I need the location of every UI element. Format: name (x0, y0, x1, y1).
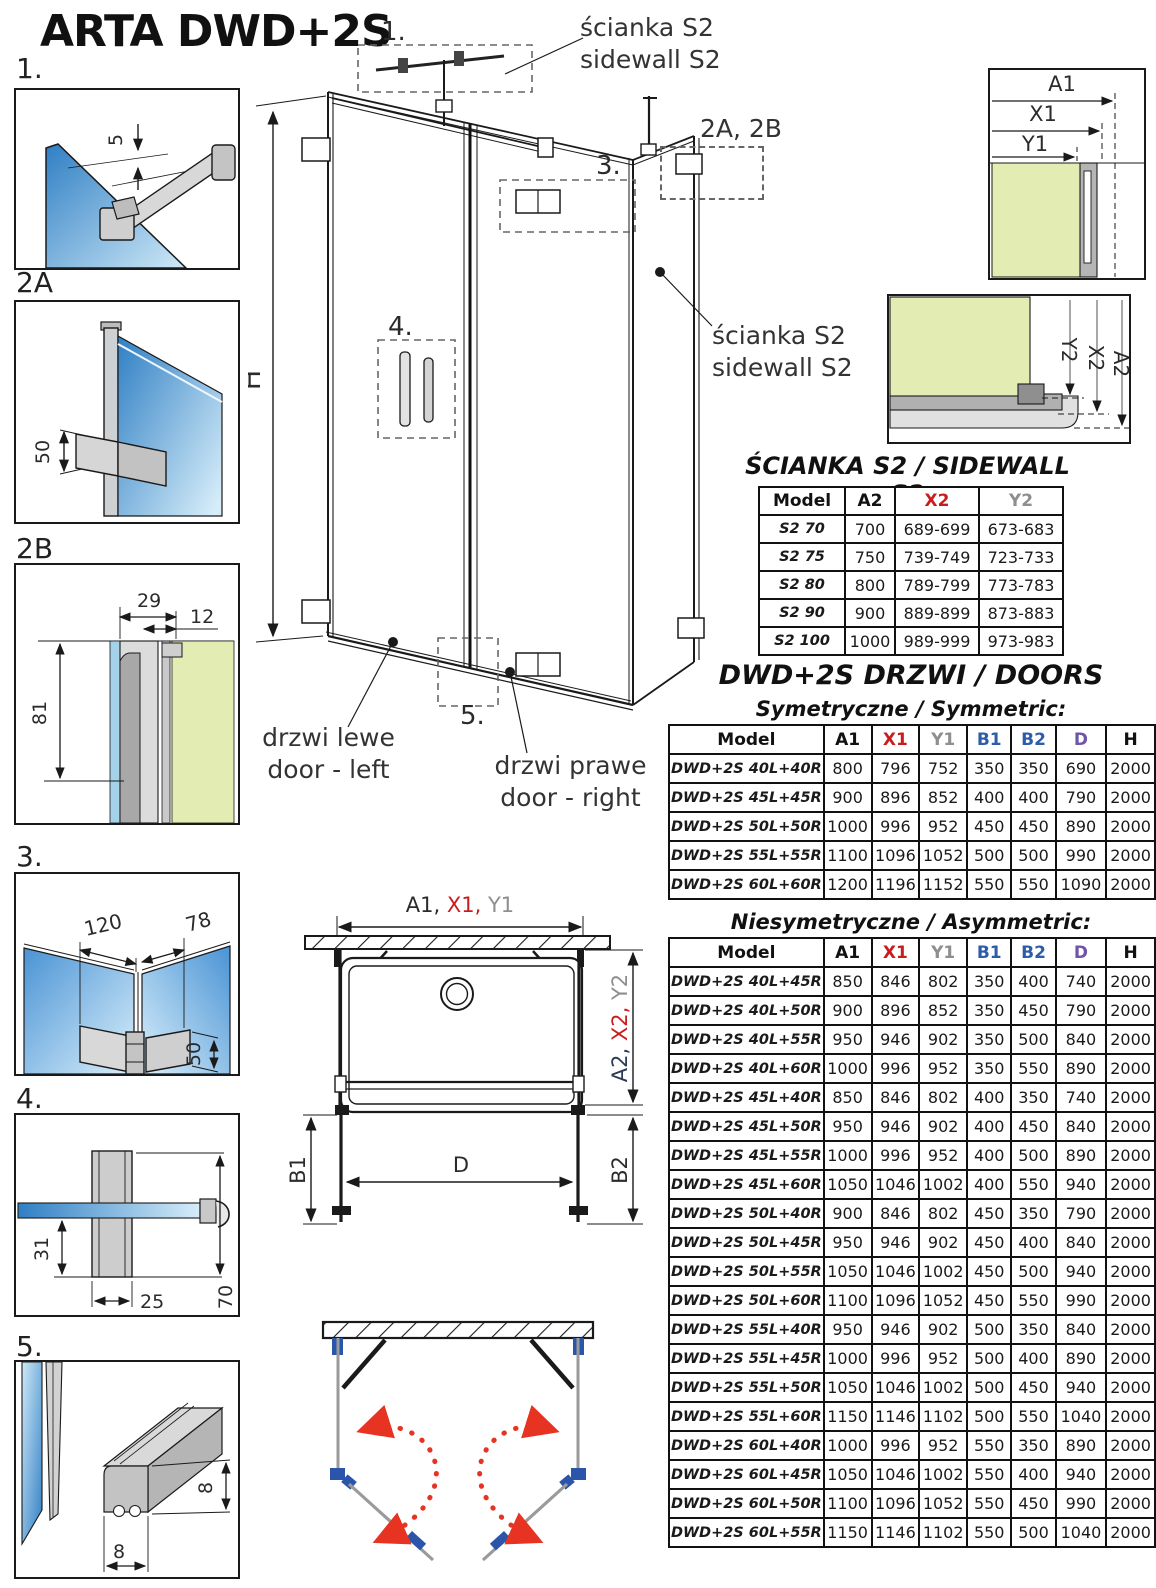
threshold-face (104, 1466, 148, 1512)
table-cell: 400 (967, 1170, 1011, 1199)
hinge-left (330, 1468, 345, 1480)
table-cell: 900 (845, 599, 895, 627)
table-cell: 2000 (1106, 1170, 1155, 1199)
door-left-pl: drzwi lewe (246, 722, 411, 754)
table-cell: 950 (824, 1025, 872, 1054)
table-cell: 550 (967, 1518, 1011, 1547)
handle-left (406, 1531, 426, 1550)
table-row: DWD+2S 45L+45R9008968524004007902000 (669, 783, 1155, 812)
table-cell: DWD+2S 55L+55R (669, 841, 824, 870)
column-header: A1 (824, 938, 872, 967)
table-cell: 2000 (1106, 812, 1155, 841)
column-header: Y2 (979, 487, 1063, 515)
callout-1-label: 1. (381, 17, 406, 47)
table-cell: 1052 (919, 841, 967, 870)
table-row: DWD+2S 50L+50R10009969524504508902000 (669, 812, 1155, 841)
table-cell: 850 (824, 967, 872, 996)
table-cell: DWD+2S 45L+55R (669, 1141, 824, 1170)
table-cell: 1000 (824, 812, 872, 841)
table-row: DWD+2S 55L+50R1050104610025004509402000 (669, 1373, 1155, 1402)
door-corner-detail: A1 X1 Y1 (985, 65, 1155, 290)
table-cell: 450 (1011, 1112, 1055, 1141)
asymmetric-subtitle: Niesymetryczne / Asymmetric: (668, 910, 1154, 934)
table-cell: 350 (1011, 1431, 1055, 1460)
table-row: DWD+2S 60L+50R1100109610525504509902000 (669, 1489, 1155, 1518)
table-cell: 1100 (824, 1489, 872, 1518)
sidewall-glass (890, 297, 1030, 396)
table-cell: 2000 (1106, 996, 1155, 1025)
table-cell: 2000 (1106, 870, 1155, 899)
table-cell: 1052 (919, 1286, 967, 1315)
door-left-en: door - left (246, 754, 411, 786)
table-row: DWD+2S 45L+55R10009969524005008902000 (669, 1141, 1155, 1170)
table-cell: 1000 (824, 1431, 872, 1460)
dim-a2-label: A2 (1109, 351, 1133, 377)
callout-2ab-label: 2A, 2B (700, 114, 782, 143)
table-row: S2 70700689-699673-683 (759, 515, 1063, 543)
hinge-bottom-left (302, 600, 330, 623)
swing-arc-left (363, 1426, 436, 1540)
table-cell: 1050 (824, 1170, 872, 1199)
table-cell: 723-733 (979, 543, 1063, 571)
detail-3-box: 120 78 50 (14, 872, 240, 1076)
table-cell: 450 (967, 812, 1011, 841)
glass-panel (118, 336, 222, 516)
door-handle-right (424, 358, 433, 422)
table-cell: 400 (967, 1083, 1011, 1112)
table-cell: 350 (1011, 1083, 1055, 1112)
table-cell: 1096 (872, 841, 920, 870)
table-cell: 952 (919, 1344, 967, 1373)
table-cell: S2 100 (759, 627, 845, 655)
dim-y1-label: Y1 (1021, 132, 1048, 156)
table-cell: 989-999 (895, 627, 979, 655)
hook-fitting (200, 1199, 216, 1223)
table-row: DWD+2S 60L+45R1050104610025504009402000 (669, 1460, 1155, 1489)
sidewall-top-label: ścianka S2 sidewall S2 (580, 12, 721, 76)
table-cell: DWD+2S 60L+60R (669, 870, 824, 899)
table-cell: 946 (872, 1112, 920, 1141)
door-right-label: drzwi prawe door - right (478, 750, 663, 814)
table-cell: 1040 (1056, 1402, 1107, 1431)
sidewall-right-en: sidewall S2 (712, 352, 853, 384)
table-cell: 902 (919, 1112, 967, 1141)
handle-right (490, 1531, 510, 1550)
table-cell: 902 (919, 1025, 967, 1054)
detail-1-label: 1. (16, 52, 43, 85)
detail-2b-box: 29 12 81 (14, 563, 240, 825)
table-cell: 450 (967, 1257, 1011, 1286)
table-cell: 1050 (824, 1257, 872, 1286)
table-cell: 500 (967, 1344, 1011, 1373)
table-cell: 700 (845, 515, 895, 543)
table-cell: 2000 (1106, 841, 1155, 870)
table-row: DWD+2S 45L+40R8508468024003507402000 (669, 1083, 1155, 1112)
table-cell: 350 (1011, 1315, 1055, 1344)
table-cell: 400 (1011, 1344, 1055, 1373)
column-header: Model (669, 938, 824, 967)
table-cell: 940 (1056, 1170, 1107, 1199)
table-cell: 450 (967, 1286, 1011, 1315)
detail-2b-drawing: 29 12 81 (16, 565, 238, 823)
table-cell: 802 (919, 967, 967, 996)
column-header: B1 (967, 938, 1011, 967)
detail-5-box: 8 8 (14, 1360, 240, 1579)
table-cell: 2000 (1106, 1054, 1155, 1083)
table-cell: 896 (872, 996, 920, 1025)
detail-4-box: 31 25 70 (14, 1113, 240, 1317)
table-cell: 946 (872, 1025, 920, 1054)
table-cell: 852 (919, 996, 967, 1025)
table-cell: 2000 (1106, 1228, 1155, 1257)
table-cell: 500 (967, 1373, 1011, 1402)
glass-edge (110, 641, 120, 823)
wall-profile (104, 328, 118, 516)
table-cell: 400 (1011, 967, 1055, 996)
table-cell: 840 (1056, 1112, 1107, 1141)
table-cell: 350 (1011, 1199, 1055, 1228)
table-cell: 1050 (824, 1460, 872, 1489)
door-right-en: door - right (478, 782, 663, 814)
table-cell: 500 (967, 1315, 1011, 1344)
glass-strip (18, 1203, 200, 1218)
table-cell: 2000 (1106, 1141, 1155, 1170)
table-row: DWD+2S 60L+55R11501146110255050010402000 (669, 1518, 1155, 1547)
table-cell: S2 80 (759, 571, 845, 599)
detail-1-box: 5 (14, 88, 240, 270)
table-cell: 1152 (919, 870, 967, 899)
table-cell: 1146 (872, 1402, 920, 1431)
table-cell: 1050 (824, 1373, 872, 1402)
table-cell: 400 (967, 1112, 1011, 1141)
table-cell: 740 (1056, 1083, 1107, 1112)
dim-8-side: 8 (195, 1482, 217, 1494)
table-cell: 550 (967, 1460, 1011, 1489)
table-cell: 450 (1011, 812, 1055, 841)
table-cell: DWD+2S 55L+45R (669, 1344, 824, 1373)
door-left-label: drzwi lewe door - left (246, 722, 411, 786)
wall-mount (212, 145, 235, 180)
table-cell: 2000 (1106, 1083, 1155, 1112)
hinge-right (571, 1468, 586, 1480)
table-cell: DWD+2S 45L+50R (669, 1112, 824, 1141)
table-cell: 350 (967, 1025, 1011, 1054)
table-cell: 900 (824, 783, 872, 812)
table-cell: 840 (1056, 1228, 1107, 1257)
table-cell: 673-683 (979, 515, 1063, 543)
table-cell: DWD+2S 55L+50R (669, 1373, 824, 1402)
table-row: DWD+2S 55L+60R11501146110250055010402000 (669, 1402, 1155, 1431)
table-cell: DWD+2S 60L+45R (669, 1460, 824, 1489)
table-cell: DWD+2S 45L+40R (669, 1083, 824, 1112)
column-header: H (1106, 725, 1155, 754)
table-cell: DWD+2S 40L+55R (669, 1025, 824, 1054)
table-cell: 550 (967, 870, 1011, 899)
table-cell: 550 (967, 1431, 1011, 1460)
table-cell: 2000 (1106, 783, 1155, 812)
table-row: S2 90900889-899873-883 (759, 599, 1063, 627)
callout-5-label: 5. (460, 701, 485, 731)
table-cell: 1002 (919, 1170, 967, 1199)
table-cell: 902 (919, 1228, 967, 1257)
table-cell: 350 (967, 967, 1011, 996)
table-cell: DWD+2S 55L+40R (669, 1315, 824, 1344)
asymmetric-doors-table: ModelA1X1Y1B1B2DHDWD+2S 40L+45R850846802… (668, 937, 1156, 1548)
table-cell: 773-783 (979, 571, 1063, 599)
dim-31: 31 (31, 1237, 53, 1261)
table-cell: 802 (919, 1199, 967, 1228)
detail-4-drawing: 31 25 70 (16, 1115, 238, 1315)
table-cell: 2000 (1106, 1489, 1155, 1518)
table-cell: 1102 (919, 1518, 967, 1547)
table-cell: 950 (824, 1112, 872, 1141)
table-cell: 1102 (919, 1402, 967, 1431)
table-cell: 1200 (824, 870, 872, 899)
table-cell: 952 (919, 1431, 967, 1460)
dim-78: 78 (183, 907, 214, 937)
table-cell: 690 (1056, 754, 1107, 783)
dim-a1-label: A1 (1048, 72, 1076, 96)
table-row: S2 80800789-799773-783 (759, 571, 1063, 599)
table-cell: 2000 (1106, 1257, 1155, 1286)
table-cell: 2000 (1106, 1373, 1155, 1402)
column-header: A1 (824, 725, 872, 754)
table-cell: 2000 (1106, 1402, 1155, 1431)
column-header: D (1056, 938, 1107, 967)
table-cell: 790 (1056, 783, 1107, 812)
table-cell: 2000 (1106, 1286, 1155, 1315)
doors-table-title: DWD+2S DRZWI / DOORS (668, 660, 1154, 691)
table-cell: 1096 (872, 1286, 920, 1315)
dim-b1-label: B1 (286, 1156, 310, 1184)
column-header: X1 (872, 938, 920, 967)
wall-hatch (305, 936, 610, 949)
hinge-top-left (302, 138, 330, 161)
table-cell: 1046 (872, 1373, 920, 1402)
table-cell: 1046 (872, 1257, 920, 1286)
column-header: B1 (967, 725, 1011, 754)
table-cell: 940 (1056, 1257, 1107, 1286)
table-cell: 2000 (1106, 1431, 1155, 1460)
plan-top-dim: A1, X1, Y1 (406, 893, 514, 917)
sidewall-corner-detail: Y2 X2 A2 (878, 292, 1150, 450)
table-cell: 400 (1011, 783, 1055, 812)
callout-4-label: 4. (388, 312, 413, 342)
table-cell: 873-883 (979, 599, 1063, 627)
detail-5-drawing: 8 8 (16, 1362, 238, 1577)
column-header: Model (759, 487, 845, 515)
table-cell: 996 (872, 1344, 920, 1373)
spec-sheet-page: ARTA DWD+2S 1. 5 2A (0, 0, 1156, 1588)
table-cell: 1100 (824, 1286, 872, 1315)
table-row: DWD+2S 55L+45R10009969525004008902000 (669, 1344, 1155, 1373)
table-row: DWD+2S 45L+50R9509469024004508402000 (669, 1112, 1155, 1141)
table-cell: 450 (1011, 1489, 1055, 1518)
table-cell: 2000 (1106, 1518, 1155, 1547)
dim-5: 5 (105, 134, 127, 146)
column-header: X2 (895, 487, 979, 515)
symmetric-doors-table: ModelA1X1Y1B1B2DHDWD+2S 40L+40R800796752… (668, 724, 1156, 900)
table-cell: 1196 (872, 870, 920, 899)
table-cell: 1002 (919, 1257, 967, 1286)
table-cell: 1000 (845, 627, 895, 655)
table-row: DWD+2S 55L+55R1100109610525005009902000 (669, 841, 1155, 870)
table-cell: 1150 (824, 1518, 872, 1547)
sidewall-bracket-bottom (678, 618, 704, 638)
table-cell: 890 (1056, 812, 1107, 841)
sidewall-top-en: sidewall S2 (580, 44, 721, 76)
table-cell: 2000 (1106, 1025, 1155, 1054)
dim-y2-label: Y2 (1057, 337, 1081, 363)
table-cell: 890 (1056, 1431, 1107, 1460)
detail-3-label: 3. (16, 840, 43, 873)
table-cell: DWD+2S 40L+40R (669, 754, 824, 783)
table-cell: 996 (872, 1141, 920, 1170)
table-cell: 789-799 (895, 571, 979, 599)
wall-section (992, 163, 1080, 277)
column-header: B2 (1011, 725, 1055, 754)
table-cell: S2 90 (759, 599, 845, 627)
table-cell: 752 (919, 754, 967, 783)
table-cell: 500 (1011, 1518, 1055, 1547)
detail-2b-label: 2B (16, 532, 53, 565)
table-cell: DWD+2S 40L+60R (669, 1054, 824, 1083)
detail-4-label: 4. (16, 1082, 43, 1115)
column-header: A2 (845, 487, 895, 515)
table-cell: 550 (1011, 1286, 1055, 1315)
wall-section (172, 641, 234, 823)
table-cell: 840 (1056, 1315, 1107, 1344)
table-cell: 550 (967, 1489, 1011, 1518)
column-header: Model (669, 725, 824, 754)
table-cell: 850 (824, 1083, 872, 1112)
dim-d-label: D (453, 1153, 469, 1177)
table-cell: 896 (872, 783, 920, 812)
column-header: Y1 (919, 725, 967, 754)
table-header-row: ModelA1X1Y1B1B2DH (669, 938, 1155, 967)
table-cell: 350 (967, 996, 1011, 1025)
table-row: S2 1001000989-999973-983 (759, 627, 1063, 655)
detail-1-drawing: 5 (16, 90, 238, 268)
table-cell: DWD+2S 50L+45R (669, 1228, 824, 1257)
table-cell: 900 (824, 1199, 872, 1228)
table-cell: DWD+2S 45L+45R (669, 783, 824, 812)
table-cell: 2000 (1106, 1344, 1155, 1373)
table-cell: 1096 (872, 1489, 920, 1518)
column-header: X1 (872, 725, 920, 754)
table-cell: 990 (1056, 1489, 1107, 1518)
table-row: DWD+2S 50L+60R1100109610524505509902000 (669, 1286, 1155, 1315)
table-cell: 500 (1011, 1025, 1055, 1054)
sidewall-top-pl: ścianka S2 (580, 12, 721, 44)
table-cell: 550 (1011, 870, 1055, 899)
table-cell: 846 (872, 1199, 920, 1228)
symmetric-subtitle: Symetryczne / Symmetric: (668, 697, 1154, 721)
table-cell: DWD+2S 55L+60R (669, 1402, 824, 1431)
table-cell: 800 (845, 571, 895, 599)
table-cell: DWD+2S 50L+50R (669, 812, 824, 841)
table-cell: 500 (1011, 1141, 1055, 1170)
dim-50: 50 (32, 440, 54, 464)
table-cell: 890 (1056, 1141, 1107, 1170)
table-cell: 800 (824, 754, 872, 783)
hinge-knuckle (126, 1032, 144, 1074)
table-cell: 350 (967, 754, 1011, 783)
table-cell: S2 75 (759, 543, 845, 571)
table-cell: 890 (1056, 1344, 1107, 1373)
table-cell: 1046 (872, 1460, 920, 1489)
dim-8-bottom: 8 (113, 1541, 125, 1563)
dim-12: 12 (190, 606, 214, 628)
table-cell: 1002 (919, 1373, 967, 1402)
table-cell: DWD+2S 50L+40R (669, 1199, 824, 1228)
table-cell: 996 (872, 812, 920, 841)
callout-2ab-box (660, 146, 764, 200)
table-cell: 1052 (919, 1489, 967, 1518)
table-cell: 1040 (1056, 1518, 1107, 1547)
table-cell: 889-899 (895, 599, 979, 627)
table-cell: 940 (1056, 1373, 1107, 1402)
table-cell: 790 (1056, 1199, 1107, 1228)
table-cell: 996 (872, 1431, 920, 1460)
plan-right-dim: A2, X2, Y2 (608, 974, 632, 1082)
column-header: B2 (1011, 938, 1055, 967)
table-cell: 689-699 (895, 515, 979, 543)
seal-strip (46, 1362, 62, 1520)
table-cell: 400 (1011, 1228, 1055, 1257)
detail-5-label: 5. (16, 1330, 43, 1363)
dim-25: 25 (140, 1291, 164, 1313)
table-cell: DWD+2S 50L+60R (669, 1286, 824, 1315)
table-row: DWD+2S 45L+60R1050104610024005509402000 (669, 1170, 1155, 1199)
table-cell: 946 (872, 1228, 920, 1257)
table-cell: 1000 (824, 1141, 872, 1170)
table-cell: 900 (824, 996, 872, 1025)
detail-3-drawing: 120 78 50 (16, 874, 238, 1074)
table-cell: 1090 (1056, 870, 1107, 899)
table-cell: 750 (845, 543, 895, 571)
door-swing-diagram (275, 1282, 675, 1588)
table-cell: 2000 (1106, 1315, 1155, 1344)
table-cell: 996 (872, 1054, 920, 1083)
sidewall-right-label: ścianka S2 sidewall S2 (712, 320, 853, 384)
door-handle-left (400, 352, 410, 426)
column-header: D (1056, 725, 1107, 754)
table-row: DWD+2S 50L+55R1050104610024505009402000 (669, 1257, 1155, 1286)
table-cell: 952 (919, 812, 967, 841)
table-cell: 790 (1056, 996, 1107, 1025)
table-cell: 2000 (1106, 1112, 1155, 1141)
plan-view-drawing: A1, X1, Y1 A2, X2, Y2 B2 (275, 872, 675, 1272)
table-row: S2 75750739-749723-733 (759, 543, 1063, 571)
table-header-row: ModelA2X2Y2 (759, 487, 1063, 515)
table-row: DWD+2S 40L+50R9008968523504507902000 (669, 996, 1155, 1025)
table-cell: 852 (919, 783, 967, 812)
table-cell: 950 (824, 1315, 872, 1344)
table-cell: 890 (1056, 1054, 1107, 1083)
table-cell: 450 (1011, 996, 1055, 1025)
table-cell: 802 (919, 1083, 967, 1112)
table-row: DWD+2S 40L+55R9509469023505008402000 (669, 1025, 1155, 1054)
table-cell: DWD+2S 40L+50R (669, 996, 824, 1025)
table-cell: 500 (967, 1402, 1011, 1431)
table-cell: 500 (1011, 1257, 1055, 1286)
detail-2a-label: 2A (16, 266, 53, 299)
table-cell: 952 (919, 1054, 967, 1083)
dim-x2-label: X2 (1084, 345, 1108, 371)
table-cell: 500 (1011, 841, 1055, 870)
table-cell: 1002 (919, 1460, 967, 1489)
